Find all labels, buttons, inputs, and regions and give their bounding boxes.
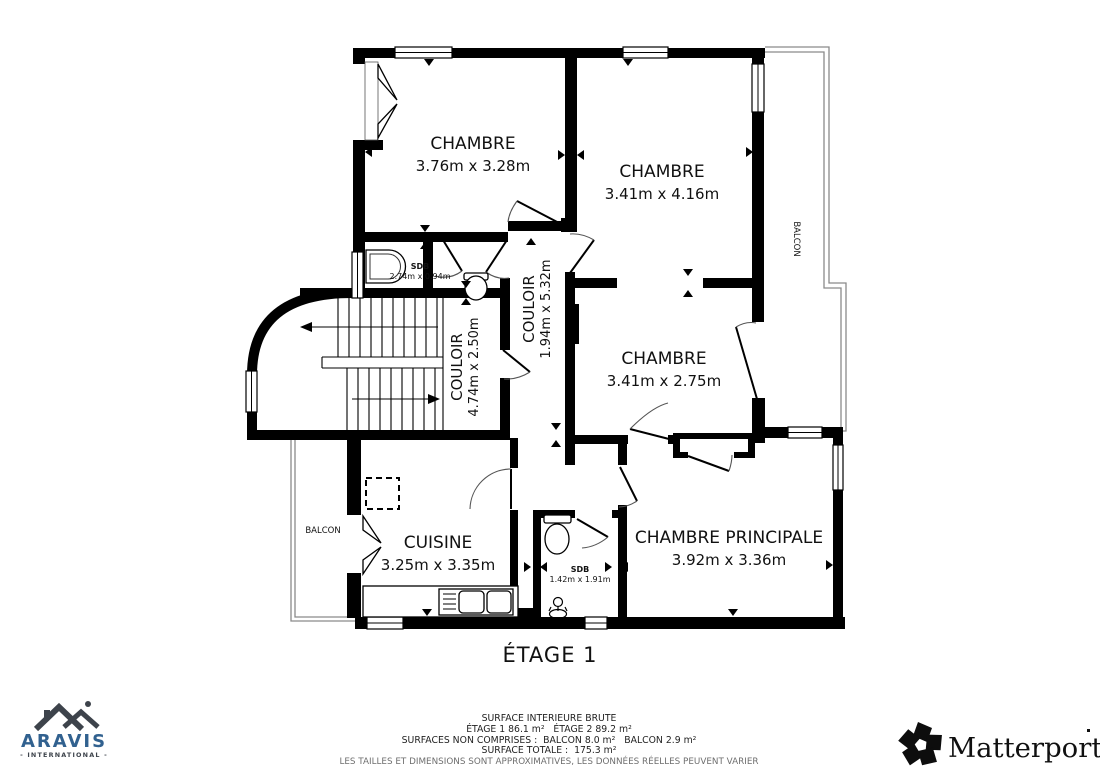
matterport-wordmark: Matterport (948, 732, 1100, 764)
room-dims-sdb1: 2.74m x 0.94m (389, 272, 450, 281)
stairs (300, 295, 443, 430)
footer-line4: SURFACE TOTALE : 175.3 m² (482, 745, 617, 756)
room-label-couloir2: COULOIR (448, 333, 466, 401)
room-label-principale: CHAMBRE PRINCIPALE (635, 528, 823, 548)
page-title: ÉTAGE 1 (502, 642, 597, 667)
room-label-cuisine: CUISINE (404, 533, 473, 553)
door-minihall-principale (619, 467, 637, 507)
floorplan-canvas: CHAMBRE 3.76m x 3.28m CHAMBRE 3.41m x 4.… (0, 0, 1100, 777)
room-dims-chambre3: 3.41m x 2.75m (607, 372, 721, 390)
room-label-sdb1: SDB (411, 262, 430, 271)
room-label-couloir1: COULOIR (520, 275, 538, 343)
room-dims-chambre1: 3.76m x 3.28m (416, 157, 530, 175)
room-label-chambre1: CHAMBRE (430, 134, 515, 154)
room-dims-principale: 3.92m x 3.36m (672, 551, 786, 569)
door-chambre1 (508, 201, 561, 224)
matterport-pinwheel-icon (897, 722, 947, 770)
aravis-roof-icon (36, 701, 98, 729)
doors (363, 62, 757, 574)
room-dims-sdb2: 1.42m x 1.91m (549, 575, 610, 584)
french-door-kitchen-balcony (363, 516, 381, 574)
matterport-logo: Matterport (897, 722, 1100, 770)
aravis-subtitle: - INTERNATIONAL - (20, 751, 108, 759)
room-label-chambre2: CHAMBRE (619, 162, 704, 182)
room-label-sdb2: SDB (571, 565, 590, 574)
toilet-sdb2 (544, 515, 571, 554)
balcony-right-outline (765, 47, 846, 431)
french-window-chambre1 (365, 62, 397, 140)
room-label-balcon-left: BALCON (305, 526, 340, 536)
toilet-wc (464, 273, 488, 300)
shower-fixture (549, 598, 567, 619)
room-dims-cuisine: 3.25m x 3.35m (381, 556, 495, 574)
footer-line1: SURFACE INTERIEURE BRUTE (482, 713, 617, 724)
door-closet-principale (688, 455, 732, 471)
curved-wall (252, 293, 352, 375)
door-balcony-chambre3 (736, 323, 757, 400)
door-stairhall-corridor (503, 350, 530, 379)
aravis-wordmark: ARAVIS (21, 731, 107, 752)
footer-line2: ÉTAGE 1 86.1 m² ÉTAGE 2 89.2 m² (466, 723, 632, 735)
room-dims-chambre2: 3.41m x 4.16m (605, 185, 719, 203)
footer: SURFACE INTERIEURE BRUTE ÉTAGE 1 86.1 m²… (339, 713, 758, 767)
door-kitchen (470, 469, 511, 509)
wardrobe-line (575, 304, 579, 344)
room-label-chambre3: CHAMBRE (621, 349, 706, 369)
footer-disclaimer: LES TAILLES ET DIMENSIONS SONT APPROXIMA… (339, 755, 758, 767)
door-chambre3-bottom (630, 403, 669, 439)
skylight-dashed (366, 478, 399, 509)
aravis-logo: ARAVIS - INTERNATIONAL - (20, 701, 108, 759)
registered-mark (1087, 729, 1090, 732)
door-sdb2 (577, 519, 608, 548)
room-label-balcon-right: BALCON (791, 221, 801, 256)
room-dims-couloir1: 1.94m x 5.32m (539, 259, 554, 358)
kitchen-counter (363, 586, 518, 617)
room-dims-couloir2: 4.74m x 2.50m (467, 317, 482, 416)
door-wc-right (486, 240, 509, 278)
door-chambre2 (570, 234, 594, 273)
stair-direction-arrows (300, 322, 440, 404)
